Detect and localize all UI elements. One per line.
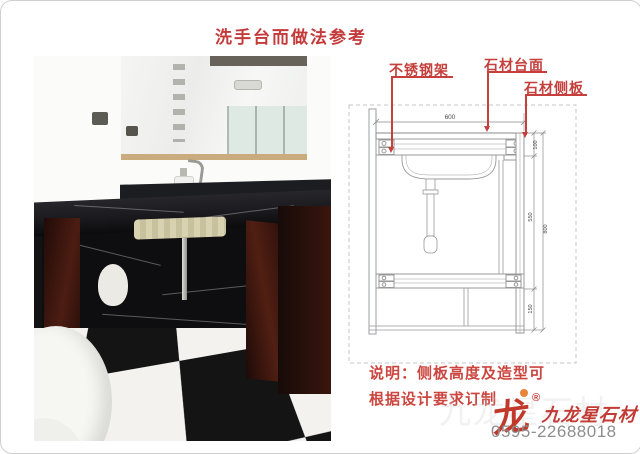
cabinet-side-panel xyxy=(278,206,331,394)
vanity-section-drawing: 600 xyxy=(346,89,582,391)
countertop-slab xyxy=(376,133,524,139)
registered-mark: ® xyxy=(532,392,540,404)
page: 洗手台而做法参考 xyxy=(0,0,640,454)
sink-bowl xyxy=(402,155,496,179)
marble-vein xyxy=(74,205,184,213)
dim-upper: 100 xyxy=(533,140,539,149)
brand-logo-flame-dot-icon xyxy=(520,389,528,397)
mirror-reflection-window xyxy=(210,56,307,66)
dim-width: 600 xyxy=(445,114,456,121)
dim-overall-height: 800 xyxy=(543,224,549,233)
leader-line xyxy=(487,71,489,129)
mirror-reflection-marks xyxy=(173,64,185,142)
leader-arrow xyxy=(388,147,394,153)
brand-phone: 0595-22688018 xyxy=(491,422,617,442)
dim-base: 150 xyxy=(528,304,534,313)
leader-line xyxy=(391,76,393,150)
sink-underside xyxy=(134,216,226,239)
mirror-reflection-vent xyxy=(234,80,262,90)
leader-line xyxy=(487,71,547,73)
leader-arrow xyxy=(484,126,490,132)
left-side-panel xyxy=(369,109,376,334)
bathroom-photo xyxy=(34,56,331,441)
mirror xyxy=(121,56,307,160)
leader-arrow xyxy=(522,132,528,138)
leader-line xyxy=(525,94,527,135)
wall-switch xyxy=(92,112,108,125)
towel xyxy=(98,264,128,306)
right-side-panel xyxy=(516,133,524,333)
bottom-shelf xyxy=(376,274,524,288)
mirror-reflection-shower-glass xyxy=(227,106,307,154)
dim-inner-height: 550 xyxy=(528,212,534,221)
marble-vein xyxy=(102,314,252,325)
leader-line xyxy=(391,76,453,78)
cabinet-inner-wall xyxy=(499,160,503,274)
page-title: 洗手台而做法参考 xyxy=(171,23,411,48)
cabinet-door-left xyxy=(44,218,80,338)
leader-line xyxy=(525,94,587,96)
note-line-1: 说明：侧板高度及造型可 xyxy=(369,361,545,387)
cabinet-door-right xyxy=(246,220,280,382)
steel-frame xyxy=(376,139,524,160)
wall-switch-small xyxy=(126,126,138,136)
marble-vein xyxy=(73,243,161,266)
drain-trap xyxy=(423,179,438,253)
drain-pipe xyxy=(182,238,187,300)
